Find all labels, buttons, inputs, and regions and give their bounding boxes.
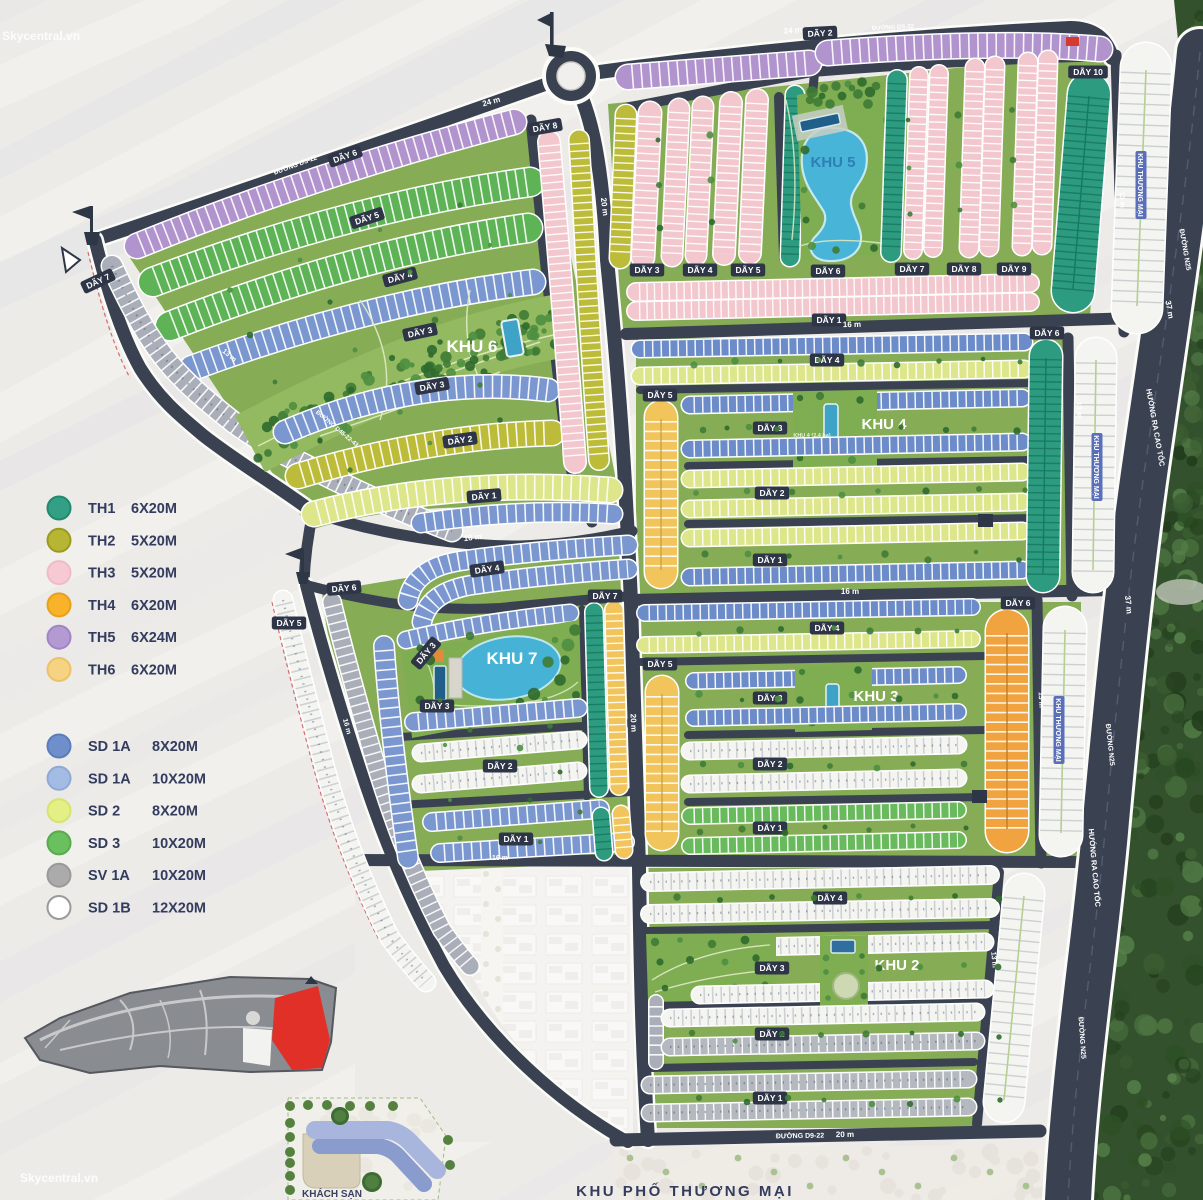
svg-text:KHU THƯƠNG MẠI: KHU THƯƠNG MẠI	[1136, 153, 1143, 217]
svg-text:KHÁCH SẠN: KHÁCH SẠN	[302, 1187, 362, 1200]
svg-text:SD 1A: SD 1A	[88, 771, 131, 787]
svg-text:DÃY 1: DÃY 1	[758, 1093, 783, 1103]
svg-text:SV 1A: SV 1A	[88, 868, 130, 884]
svg-text:DÃY 1: DÃY 1	[817, 315, 842, 325]
svg-text:DÃY 7: DÃY 7	[900, 264, 925, 274]
svg-text:TH2: TH2	[88, 533, 115, 549]
svg-text:DÃY 7: DÃY 7	[593, 591, 618, 601]
svg-text:DÃY 3: DÃY 3	[760, 963, 785, 973]
svg-text:8X20M: 8X20M	[152, 804, 198, 820]
svg-text:KHU 6: KHU 6	[446, 337, 497, 356]
svg-text:DÃY 2: DÃY 2	[758, 759, 783, 769]
svg-text:KHU 5: KHU 5	[810, 154, 855, 171]
svg-text:13 m: 13 m	[1037, 692, 1045, 708]
svg-text:10X20M: 10X20M	[152, 868, 206, 884]
svg-text:6X20M: 6X20M	[131, 501, 177, 517]
svg-text:24 m: 24 m	[783, 25, 802, 35]
svg-text:DÃY 2: DÃY 2	[807, 28, 833, 39]
svg-text:12X20M: 12X20M	[152, 901, 206, 917]
svg-text:Skycentral.vn: Skycentral.vn	[2, 29, 80, 43]
svg-text:DÃY 10: DÃY 10	[1073, 67, 1103, 77]
svg-text:16 m: 16 m	[843, 320, 861, 329]
svg-text:DÃY 6: DÃY 6	[1006, 598, 1031, 608]
svg-text:DÃY 1: DÃY 1	[504, 834, 529, 844]
svg-text:Skycentral.vn: Skycentral.vn	[20, 1171, 98, 1185]
svg-text:16 m: 16 m	[841, 587, 859, 596]
svg-text:TH3: TH3	[88, 566, 115, 582]
svg-text:20 m: 20 m	[836, 1130, 854, 1139]
svg-text:SD 1A: SD 1A	[88, 739, 131, 755]
svg-text:10X20M: 10X20M	[152, 771, 206, 787]
svg-text:DÃY 5: DÃY 5	[277, 618, 302, 628]
svg-text:13 m: 13 m	[1075, 402, 1083, 418]
svg-text:8X20M: 8X20M	[152, 739, 198, 755]
svg-text:TH4: TH4	[88, 598, 115, 614]
svg-text:16 m: 16 m	[492, 855, 508, 862]
svg-text:DÃY 4: DÃY 4	[688, 265, 713, 275]
svg-text:KHU 3: KHU 3	[853, 688, 898, 705]
svg-text:6X20M: 6X20M	[131, 663, 177, 679]
svg-text:KHU PHỐ THƯƠNG MẠI: KHU PHỐ THƯƠNG MẠI	[576, 1182, 794, 1200]
svg-text:DÃY 2: DÃY 2	[760, 488, 785, 498]
svg-text:DÃY 5: DÃY 5	[648, 390, 673, 400]
svg-text:5X20M: 5X20M	[131, 533, 177, 549]
svg-text:SD 2: SD 2	[88, 804, 120, 820]
svg-text:10X20M: 10X20M	[152, 836, 206, 852]
svg-text:37 m: 37 m	[1123, 595, 1134, 614]
svg-text:13 m: 13 m	[1118, 192, 1126, 208]
svg-text:DÃY 6: DÃY 6	[1035, 328, 1060, 338]
svg-text:DÃY 1: DÃY 1	[758, 555, 783, 565]
svg-text:SD 1B: SD 1B	[88, 901, 131, 917]
svg-text:5X20M: 5X20M	[131, 566, 177, 582]
svg-text:DÃY 8: DÃY 8	[952, 264, 977, 274]
svg-text:DÃY 3: DÃY 3	[425, 701, 450, 711]
svg-text:DÃY 5: DÃY 5	[736, 265, 761, 275]
svg-text:DÃY 4: DÃY 4	[818, 893, 843, 903]
svg-text:DÃY 6: DÃY 6	[816, 266, 841, 276]
svg-text:TH1: TH1	[88, 501, 115, 517]
svg-text:6X20M: 6X20M	[131, 598, 177, 614]
svg-text:DÃY 1: DÃY 1	[758, 823, 783, 833]
svg-text:DÃY 3: DÃY 3	[635, 265, 660, 275]
svg-text:TH5: TH5	[88, 630, 115, 646]
svg-text:SD 3: SD 3	[88, 836, 120, 852]
svg-text:6X24M: 6X24M	[131, 630, 177, 646]
svg-text:DÃY 2: DÃY 2	[488, 761, 513, 771]
svg-text:KHU 7: KHU 7	[486, 649, 537, 668]
svg-text:20 m: 20 m	[629, 714, 639, 733]
svg-text:KHU THƯƠNG MẠI: KHU THƯƠNG MẠI	[1054, 698, 1061, 762]
svg-text:TH6: TH6	[88, 663, 115, 679]
svg-text:KHU THƯƠNG MẠI: KHU THƯƠNG MẠI	[1092, 435, 1099, 499]
svg-text:DÃY 5: DÃY 5	[648, 659, 673, 669]
svg-text:DÃY 9: DÃY 9	[1002, 264, 1027, 274]
